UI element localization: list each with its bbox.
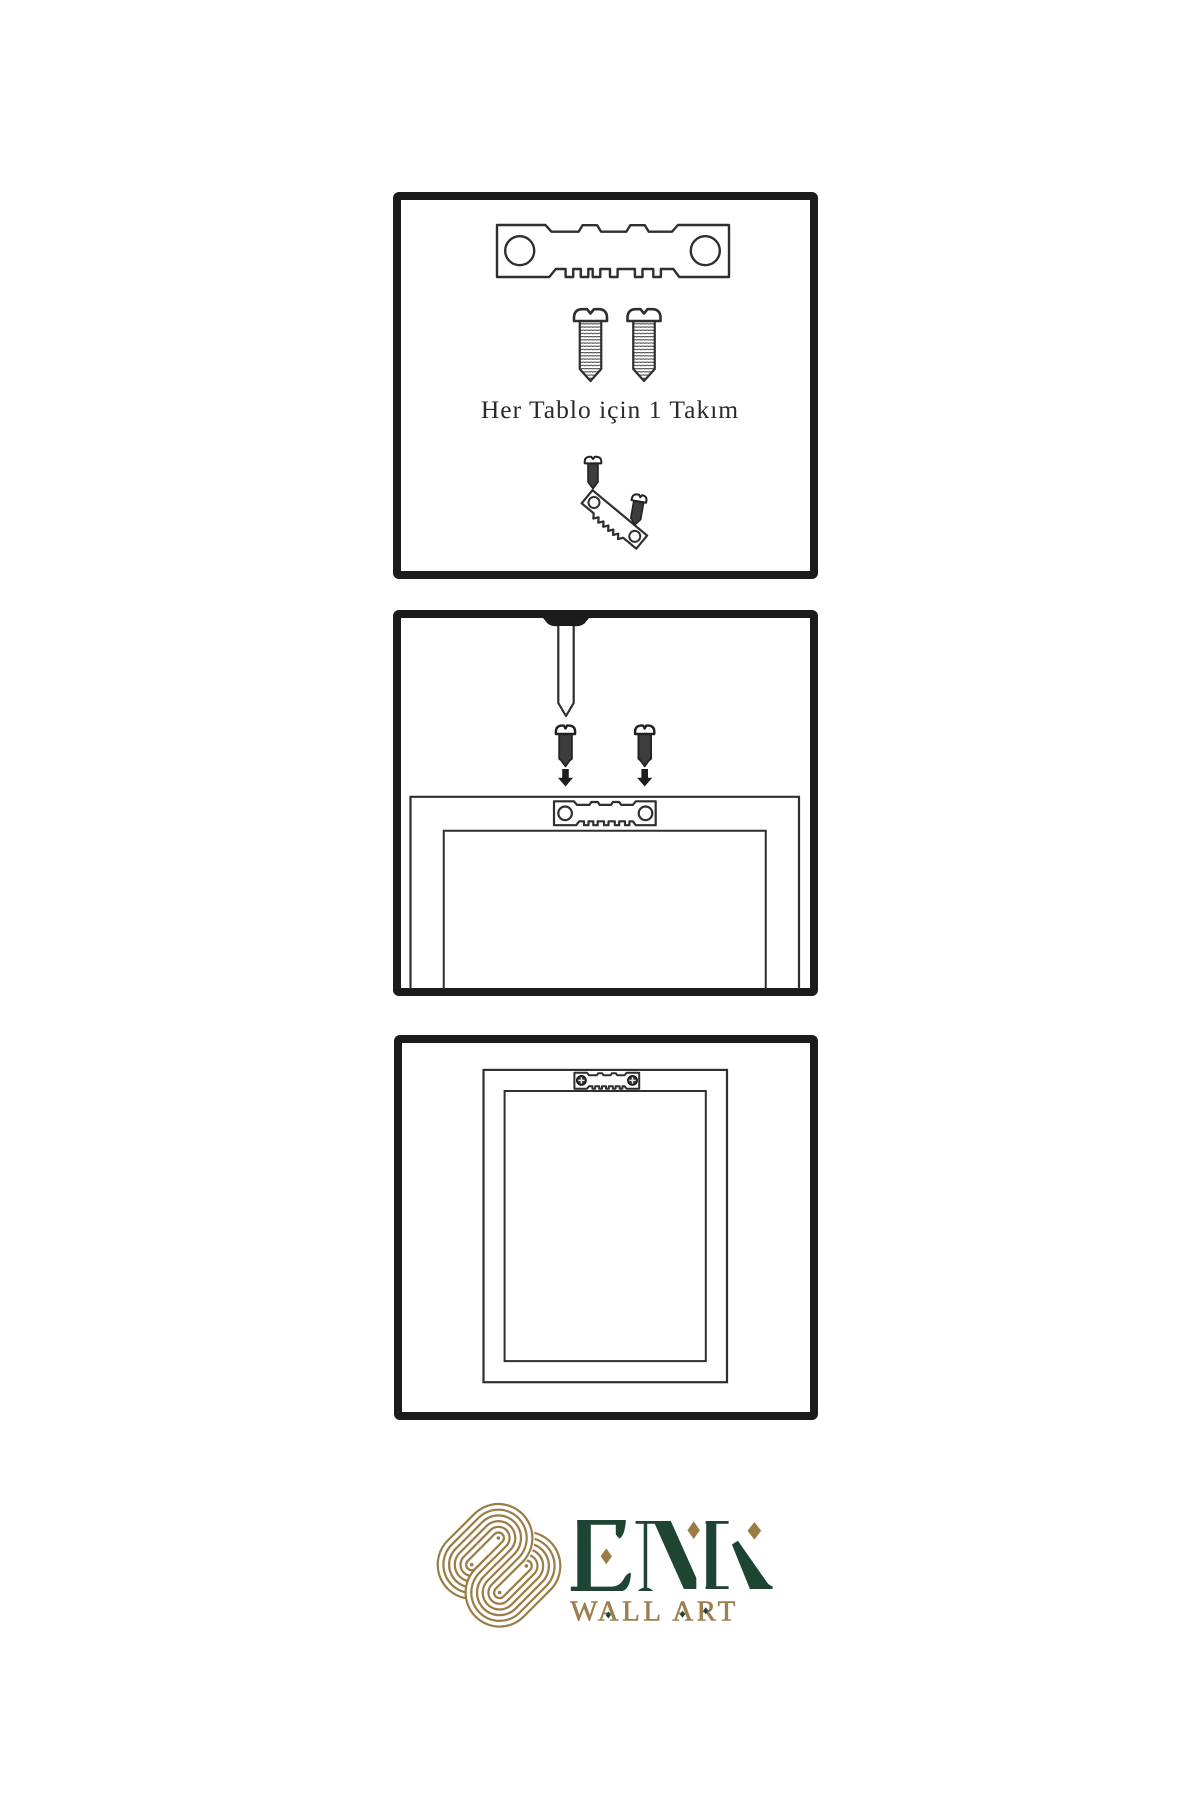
svg-text:Her Tablo için 1 Takım: Her Tablo için 1 Takım	[481, 395, 739, 424]
svg-text:WALL ART: WALL ART	[570, 1596, 739, 1628]
